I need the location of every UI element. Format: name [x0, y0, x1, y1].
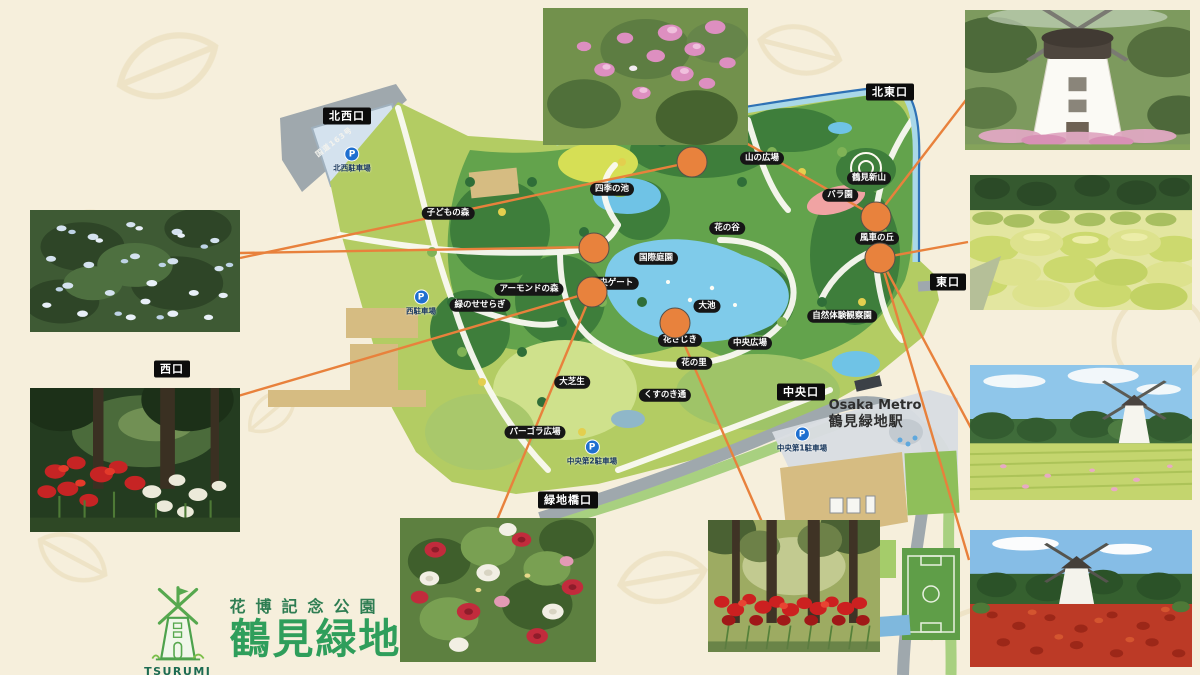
place-label: アーモンドの森	[495, 283, 564, 296]
place-label: 花の谷	[709, 222, 745, 235]
entrance-label-ryokuchibashi: 緑地橋口	[538, 492, 598, 509]
parking-label: P北西駐車場	[333, 147, 371, 174]
place-label: 四季の池	[590, 183, 634, 196]
photo-plumbago	[30, 210, 240, 332]
photo-roses	[400, 518, 596, 662]
windmill-logo-icon	[147, 583, 209, 665]
parking-name: 西駐車場	[406, 306, 436, 317]
parking-icon: P	[585, 440, 600, 455]
place-label: 花の里	[676, 357, 712, 370]
logo-park-type: 花博記念公園	[229, 593, 401, 617]
photo-mukuge	[543, 8, 748, 145]
place-label: パーゴラ広場	[504, 426, 565, 439]
place-label: 中央ゲート	[586, 277, 639, 290]
place-label: 中央広場	[728, 337, 772, 350]
place-label: 大芝生	[554, 376, 590, 389]
station-label: Osaka Metro 鶴見緑地駅	[829, 398, 922, 432]
photo-spider-lily-forest	[30, 388, 240, 532]
place-label: 山の広場	[740, 152, 784, 165]
photo-windmill-closeup	[965, 10, 1190, 150]
parking-label: P中央第2駐車場	[567, 440, 617, 467]
place-label: 子どもの森	[422, 207, 475, 220]
parking-icon: P	[795, 427, 810, 442]
parking-label: P中央第1駐車場	[777, 427, 827, 454]
place-label: 自然体験観察園	[807, 310, 877, 323]
place-label: 鶴見新山	[847, 172, 891, 185]
place-label: 大池	[693, 300, 720, 313]
photo-windmill-red-field	[970, 530, 1192, 667]
parking-name: 中央第2駐車場	[567, 456, 617, 467]
place-label: 花さじき	[658, 334, 702, 347]
parking-icon: P	[345, 147, 360, 162]
station-brand: Osaka Metro	[829, 398, 922, 414]
logo-english-text: TSURUMI RYOKUCHI	[140, 665, 215, 675]
parking-label: P西駐車場	[406, 290, 436, 317]
place-label: 緑のせせらぎ	[449, 299, 510, 312]
photo-spider-lily-trees	[708, 520, 880, 652]
parking-name: 中央第1駐車場	[777, 443, 827, 454]
entrance-label-central: 中央口	[777, 384, 825, 401]
place-label: くすのき通	[639, 389, 691, 402]
place-label: 風車の丘	[855, 232, 899, 245]
entrance-label-east: 東口	[930, 274, 966, 291]
parking-name: 北西駐車場	[333, 163, 371, 174]
photo-kochia	[970, 175, 1192, 310]
entrance-label-west: 西口	[154, 361, 190, 378]
logo-park-name: 鶴見緑地	[229, 617, 401, 662]
entrance-label-northeast: 北東口	[866, 84, 914, 101]
park-logo: TSURUMI RYOKUCHI 花博記念公園 鶴見緑地	[140, 583, 401, 675]
park-guide-infographic: 子どもの森アーモンドの森緑のせせらぎ四季の池山の広場花の谷国際庭園中央ゲート大池…	[0, 0, 1200, 675]
place-label: 国際庭園	[634, 252, 678, 265]
parking-icon: P	[414, 290, 429, 305]
photo-windmill-field	[970, 365, 1192, 500]
place-label: バラ園	[822, 189, 858, 202]
station-name: 鶴見緑地駅	[829, 414, 922, 432]
entrance-label-northwest: 北西口	[323, 108, 371, 125]
